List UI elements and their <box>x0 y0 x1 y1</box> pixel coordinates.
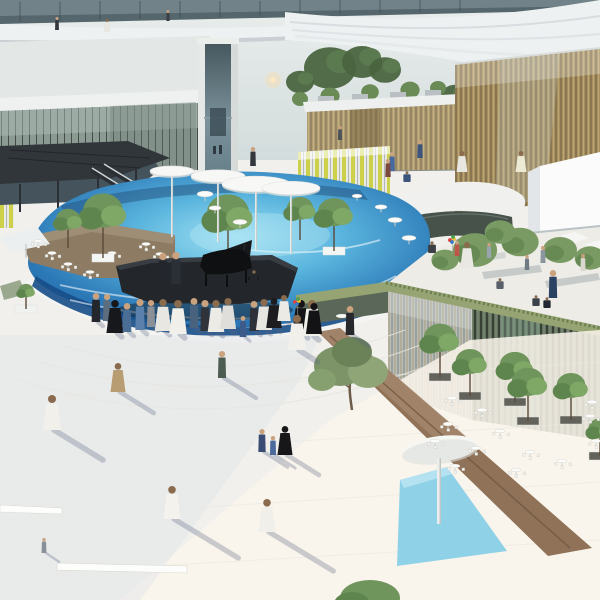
table-top <box>388 217 402 222</box>
person-head <box>159 299 166 306</box>
person-body <box>487 247 492 258</box>
canopy-disc <box>262 181 320 194</box>
table-top <box>375 205 387 209</box>
person-head <box>263 499 271 507</box>
person-shadow <box>98 322 103 326</box>
tree-canopy <box>432 256 448 268</box>
person-head <box>541 246 545 250</box>
person-body <box>428 245 436 253</box>
chair <box>462 468 465 471</box>
person-head <box>93 293 100 300</box>
person-head <box>241 316 246 321</box>
person-body <box>92 300 101 322</box>
person <box>525 255 530 270</box>
person-shadow <box>256 331 261 335</box>
person-body <box>158 260 167 284</box>
balloon <box>450 240 454 244</box>
person <box>540 246 545 263</box>
person <box>580 254 585 271</box>
person-head <box>460 151 465 156</box>
table-top <box>430 439 440 443</box>
chair <box>451 403 454 406</box>
person-shadow <box>117 333 122 337</box>
table-top <box>142 242 150 245</box>
chair <box>529 457 532 460</box>
chair <box>595 446 598 449</box>
person <box>487 243 492 258</box>
person-shadow <box>142 330 147 334</box>
person-head <box>546 297 549 300</box>
person-head <box>212 300 219 307</box>
balloon <box>451 235 455 239</box>
chair <box>499 436 502 439</box>
table-top <box>443 422 453 426</box>
tree-canopy <box>383 59 401 73</box>
chair <box>569 463 572 466</box>
canopy-disc <box>150 166 194 176</box>
chair <box>591 407 594 410</box>
person-head <box>430 241 433 244</box>
table-top <box>525 450 535 454</box>
chair <box>44 243 47 246</box>
tree-canopy <box>298 72 313 85</box>
person <box>171 252 181 284</box>
table-top <box>86 270 94 273</box>
chair <box>96 274 99 277</box>
person-head <box>499 278 502 281</box>
person-shadow <box>165 331 170 335</box>
tree-canopy <box>553 383 572 399</box>
table-top <box>477 408 487 412</box>
table-top <box>233 219 247 224</box>
chair <box>583 418 586 421</box>
render-canvas <box>0 0 600 600</box>
background-tree <box>369 57 401 83</box>
person-body <box>385 163 390 177</box>
chair <box>434 446 437 449</box>
person <box>166 10 169 21</box>
tree-canopy <box>544 245 564 260</box>
chair <box>455 426 458 429</box>
person-head <box>519 151 524 156</box>
chair <box>145 248 148 251</box>
person-head <box>455 241 458 244</box>
chair <box>31 243 34 246</box>
chair <box>447 429 450 432</box>
person-body <box>42 542 47 553</box>
person <box>55 17 59 30</box>
tree-canopy <box>486 228 504 242</box>
chair <box>58 255 61 258</box>
person <box>338 126 342 140</box>
person <box>549 270 557 298</box>
chair <box>89 276 92 279</box>
table-top <box>591 439 600 443</box>
person-body <box>135 306 144 330</box>
person-body <box>580 258 585 271</box>
person-head <box>271 298 278 305</box>
canopy-pole-shade <box>172 171 173 237</box>
tree-canopy <box>507 379 529 397</box>
chair <box>139 246 142 249</box>
person-body <box>270 441 276 455</box>
person-head <box>535 295 538 298</box>
person-head <box>281 295 287 301</box>
person <box>385 159 390 177</box>
tree-canopy <box>570 382 588 397</box>
chair <box>555 463 558 466</box>
person-head <box>293 315 301 323</box>
chair <box>83 274 86 277</box>
table-top <box>447 396 457 400</box>
table-top <box>352 194 362 198</box>
person-head <box>259 429 264 434</box>
table-top <box>511 468 521 472</box>
table-top <box>557 459 567 463</box>
table-top <box>471 446 481 450</box>
person-head <box>124 303 131 310</box>
person-head <box>260 299 267 306</box>
chair <box>441 426 444 429</box>
balloon <box>296 297 300 301</box>
terrace-tree <box>485 220 516 243</box>
person-body <box>346 313 355 335</box>
tree-canopy <box>332 208 353 225</box>
person-body <box>218 358 226 378</box>
canopy-pole-shade <box>291 188 292 254</box>
person-head <box>487 243 490 246</box>
tree-canopy <box>469 358 487 373</box>
person-body <box>171 260 181 284</box>
person-head <box>581 254 585 258</box>
person-head <box>525 255 528 258</box>
chair <box>153 256 156 259</box>
chair <box>442 443 445 446</box>
chair <box>589 421 592 424</box>
tree-canopy <box>101 205 126 226</box>
tree-canopy <box>25 289 35 297</box>
person-body <box>147 307 155 327</box>
table-top <box>587 400 597 404</box>
person-head <box>191 298 198 305</box>
person-head <box>201 300 208 307</box>
person-body <box>403 174 410 182</box>
person-head <box>224 298 231 305</box>
chair <box>37 245 40 248</box>
chair <box>445 400 448 403</box>
table-top <box>450 464 460 468</box>
person-body <box>123 310 132 332</box>
person-head <box>174 300 182 308</box>
person-head <box>148 300 154 306</box>
person-head <box>390 152 394 156</box>
tree-canopy <box>438 333 459 350</box>
chair <box>523 454 526 457</box>
person-head <box>282 426 289 433</box>
person-head <box>219 351 225 357</box>
chair <box>509 472 512 475</box>
table-top <box>64 262 72 265</box>
tree-planter <box>589 452 600 460</box>
person-shadow <box>129 332 134 336</box>
person <box>158 253 167 284</box>
architectural-render <box>0 0 600 600</box>
person-head <box>418 140 422 144</box>
person-head <box>136 299 143 306</box>
person-head <box>42 538 45 541</box>
canopy-pole-shade <box>256 184 257 250</box>
chair <box>118 255 121 258</box>
person-head <box>168 486 176 494</box>
chair <box>489 412 492 415</box>
person <box>250 147 256 166</box>
person-head <box>104 294 110 300</box>
person-head <box>347 306 354 313</box>
person-body <box>190 305 199 328</box>
chair <box>475 453 478 456</box>
chair <box>483 450 486 453</box>
person-head <box>406 171 409 174</box>
person-body <box>200 307 209 331</box>
person-head <box>56 17 59 20</box>
chair <box>537 454 540 457</box>
chair <box>74 266 77 269</box>
chair <box>67 268 70 271</box>
person-body <box>549 277 557 298</box>
tree-canopy <box>419 335 441 353</box>
person-body <box>240 321 247 337</box>
person-shadow <box>180 334 185 338</box>
chair <box>585 404 588 407</box>
person-head <box>464 242 470 248</box>
chair <box>475 412 478 415</box>
table-top <box>495 429 505 433</box>
sun-flare-core <box>270 77 276 83</box>
person-body <box>55 20 59 30</box>
chair <box>481 415 484 418</box>
person <box>417 140 422 158</box>
person-head <box>172 252 179 259</box>
person-head <box>251 147 255 151</box>
tree-canopy <box>452 359 471 375</box>
background-tree <box>286 71 314 93</box>
person-body <box>338 129 342 140</box>
tree-canopy <box>313 209 335 227</box>
chair <box>523 472 526 475</box>
person-shadow <box>266 330 271 334</box>
person-shadow <box>314 336 319 340</box>
person-head <box>106 19 109 22</box>
chair <box>459 400 462 403</box>
chair <box>51 257 54 260</box>
person-body <box>496 281 503 289</box>
chair <box>454 471 457 474</box>
tree-canopy <box>526 377 547 394</box>
tree-canopy <box>53 217 69 231</box>
chair <box>507 433 510 436</box>
chair <box>469 450 472 453</box>
chair <box>166 256 169 259</box>
person-body <box>258 435 265 452</box>
table-top <box>48 251 56 254</box>
person-head <box>115 363 122 370</box>
chair <box>589 443 592 446</box>
tree-canopy <box>226 207 253 229</box>
person-shadow <box>218 332 223 336</box>
person-head <box>167 10 170 13</box>
tree-canopy <box>16 289 26 298</box>
person-head <box>251 301 258 308</box>
tree-canopy <box>78 207 104 229</box>
chair <box>428 443 431 446</box>
chair <box>448 468 451 471</box>
person-head <box>338 126 341 129</box>
person-shadow <box>276 328 281 332</box>
person-body <box>250 152 256 166</box>
person-body <box>250 274 258 282</box>
person-body <box>532 298 539 306</box>
table-top <box>402 235 416 240</box>
person-head <box>386 159 390 163</box>
person-head <box>252 270 255 273</box>
person-head <box>271 436 275 440</box>
person-shadow <box>230 329 235 333</box>
terrace-tree <box>543 237 577 263</box>
chair <box>493 433 496 436</box>
person-body <box>455 245 460 256</box>
table-top <box>197 191 213 197</box>
balloon <box>295 302 299 306</box>
person-head <box>159 253 166 260</box>
tree-canopy <box>299 205 316 219</box>
person-body <box>166 13 169 21</box>
table-top <box>585 414 595 418</box>
person-body <box>543 300 550 308</box>
person-head <box>111 300 119 308</box>
chair <box>561 466 564 469</box>
person-head <box>310 303 317 310</box>
person-shadow <box>196 328 201 332</box>
chair <box>45 255 48 258</box>
person-body <box>417 144 422 158</box>
chair <box>597 418 600 421</box>
table-top <box>209 206 221 210</box>
person-body <box>540 250 545 263</box>
chair <box>152 246 155 249</box>
chair <box>515 475 518 478</box>
chair <box>61 266 64 269</box>
tree-canopy <box>67 216 82 229</box>
person-body <box>525 259 530 270</box>
person-head <box>48 395 56 403</box>
table-top <box>34 239 42 242</box>
person-head <box>550 270 556 276</box>
